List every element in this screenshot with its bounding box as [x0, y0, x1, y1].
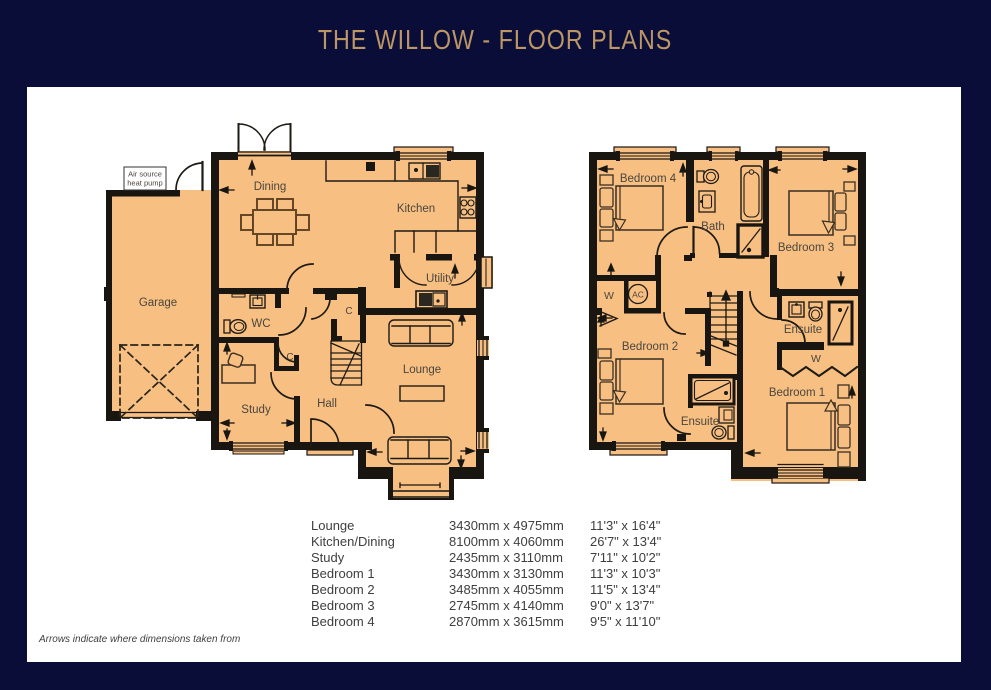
svg-text:heat pump: heat pump [127, 179, 162, 188]
svg-text:Ensuite: Ensuite [681, 416, 719, 428]
svg-text:W: W [811, 353, 821, 365]
svg-text:Ensuite: Ensuite [784, 324, 822, 336]
svg-text:C: C [345, 306, 352, 317]
svg-text:Lounge: Lounge [403, 364, 441, 376]
svg-text:Air source: Air source [128, 170, 162, 179]
svg-text:Kitchen: Kitchen [397, 203, 435, 215]
svg-text:AC: AC [632, 290, 644, 300]
svg-text:W: W [604, 290, 614, 302]
svg-text:Study: Study [241, 404, 271, 416]
svg-text:C: C [286, 352, 293, 363]
svg-text:Dining: Dining [254, 181, 287, 193]
svg-text:Utility: Utility [426, 273, 454, 285]
svg-text:Bedroom 3: Bedroom 3 [778, 242, 834, 254]
svg-text:Hall: Hall [317, 398, 337, 410]
svg-text:Bedroom 4: Bedroom 4 [620, 173, 677, 185]
svg-text:Garage: Garage [139, 297, 177, 309]
svg-text:WC: WC [251, 318, 270, 330]
svg-text:Bedroom 1: Bedroom 1 [769, 387, 825, 399]
svg-text:Bath: Bath [701, 221, 725, 233]
svg-text:Bedroom 2: Bedroom 2 [622, 341, 678, 353]
